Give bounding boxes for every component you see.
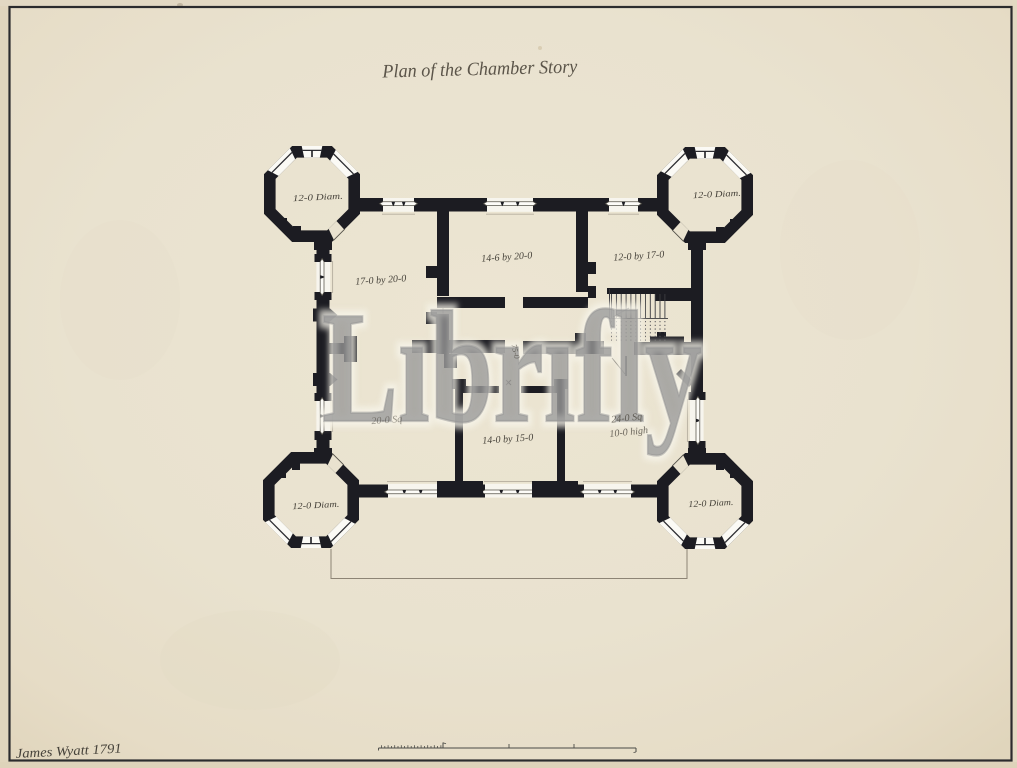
svg-text:20-0 Sq: 20-0 Sq [371, 414, 403, 427]
